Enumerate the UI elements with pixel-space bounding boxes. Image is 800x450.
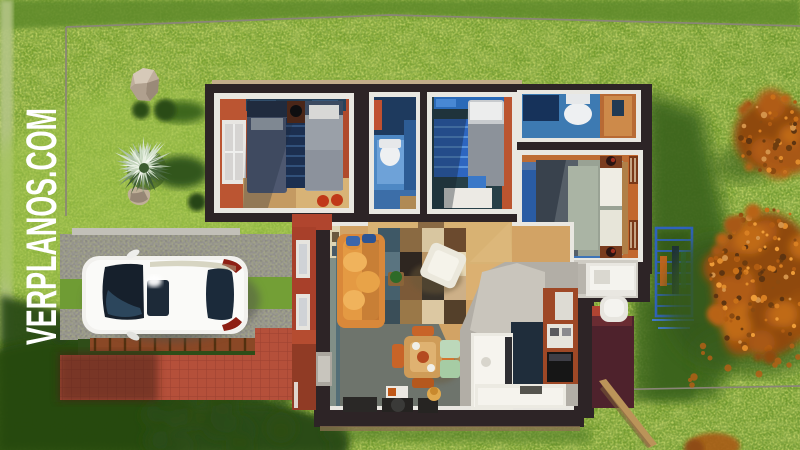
svg-text:VERPLANOS.COM: VERPLANOS.COM <box>18 108 66 345</box>
